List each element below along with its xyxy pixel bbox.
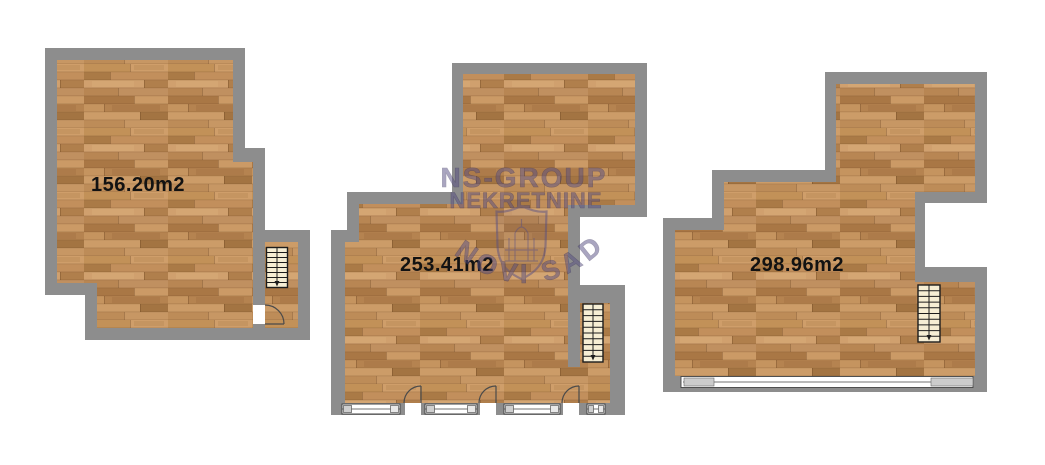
floorplan-canvas: 156.20m2 [0,0,1045,465]
window-icon [504,404,560,414]
floor-plan-unit-3: 298.96m2 [663,72,987,392]
stairs-icon [583,304,603,362]
area-label: 156.20m2 [91,174,185,196]
stairs-icon [267,248,288,288]
stairs-icon [918,285,940,342]
area-label: 298.96m2 [750,254,844,276]
floorplan-sheet: 156.20m2 [0,0,1045,465]
floor-plan-unit-1: 156.20m2 [45,48,310,340]
window-icon [681,377,973,388]
window-icon [425,404,477,414]
window-icon [342,404,400,414]
window-icon [587,404,605,414]
